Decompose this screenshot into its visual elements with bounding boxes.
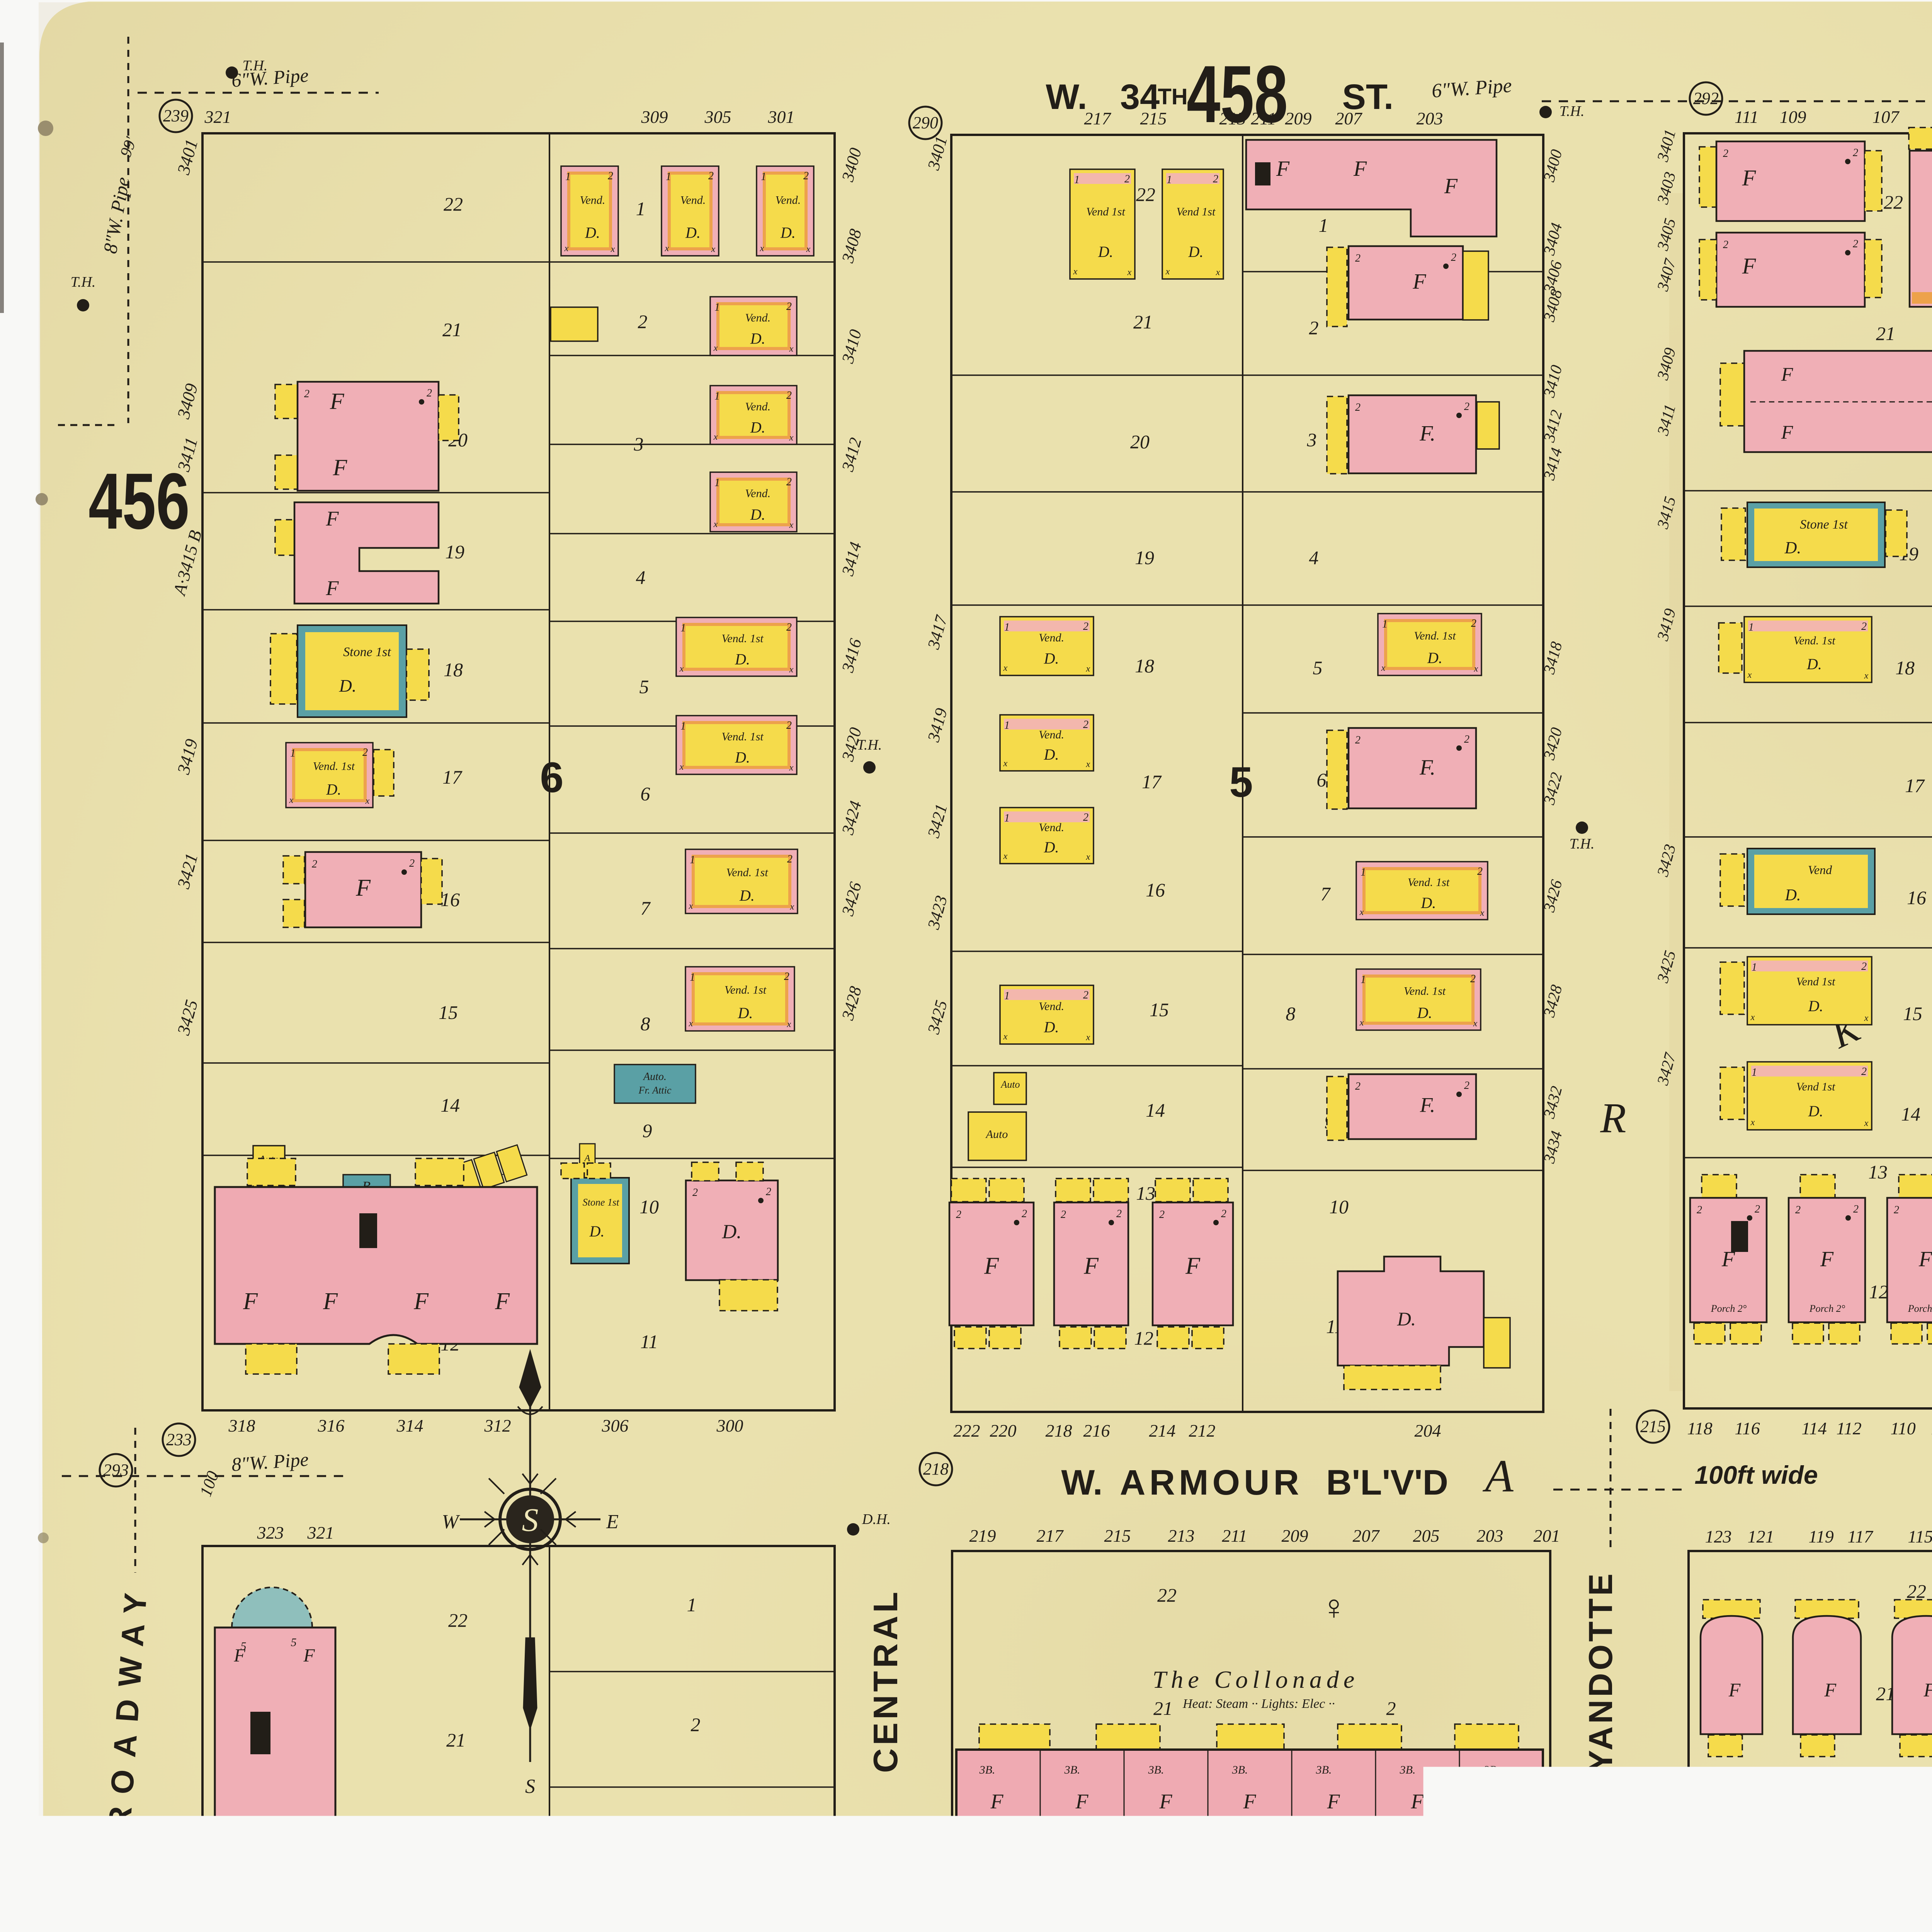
svg-text:17: 17 xyxy=(442,766,463,788)
svg-text:D.: D. xyxy=(1044,650,1059,667)
svg-text:x: x xyxy=(713,519,718,529)
svg-text:3B.: 3B. xyxy=(1316,1764,1332,1776)
svg-text:1: 1 xyxy=(980,1911,985,1923)
svg-text:x: x xyxy=(760,243,764,253)
svg-text:1: 1 xyxy=(714,477,720,489)
svg-text:312: 312 xyxy=(484,1416,511,1435)
svg-text:x: x xyxy=(1864,671,1869,681)
svg-text:3B.: 3B. xyxy=(1064,1764,1080,1776)
svg-text:321: 321 xyxy=(307,1523,334,1543)
svg-text:F: F xyxy=(1824,1679,1837,1701)
svg-text:2: 2 xyxy=(1723,239,1728,251)
svg-text:2: 2 xyxy=(786,476,792,488)
svg-text:F: F xyxy=(1918,1247,1932,1271)
svg-text:22: 22 xyxy=(1907,1580,1926,1602)
svg-text:220: 220 xyxy=(990,1421,1017,1440)
svg-text:17: 17 xyxy=(1905,775,1925,796)
svg-text:1: 1 xyxy=(680,720,686,732)
svg-text:Vend. 1st: Vend. 1st xyxy=(313,760,355,773)
svg-text:22: 22 xyxy=(1157,1584,1177,1606)
svg-text:F: F xyxy=(333,455,348,480)
svg-text:2: 2 xyxy=(1159,1209,1165,1221)
svg-text:D.: D. xyxy=(1044,746,1059,763)
svg-text:F: F xyxy=(1444,174,1458,198)
svg-text:x: x xyxy=(1474,664,1478,674)
svg-text:219: 219 xyxy=(969,1526,996,1546)
svg-text:Vend.: Vend. xyxy=(580,194,605,206)
svg-text:2: 2 xyxy=(1755,1203,1760,1215)
svg-text:2: 2 xyxy=(1723,148,1728,160)
svg-text:F: F xyxy=(323,1288,338,1315)
svg-text:F: F xyxy=(1075,1790,1089,1813)
svg-text:x: x xyxy=(789,433,794,443)
svg-text:212: 212 xyxy=(1189,1421,1216,1440)
svg-text:111: 111 xyxy=(1735,107,1759,127)
svg-text:F: F xyxy=(326,507,339,530)
svg-text:Vend.: Vend. xyxy=(1039,728,1064,741)
svg-text:1: 1 xyxy=(1748,621,1754,633)
svg-text:S: S xyxy=(525,1776,535,1798)
svg-text:1: 1 xyxy=(1319,214,1328,236)
svg-text:216: 216 xyxy=(1083,1421,1110,1440)
svg-text:209: 209 xyxy=(1282,1526,1308,1546)
svg-text:F: F xyxy=(1923,1679,1932,1701)
svg-text:x: x xyxy=(713,343,718,353)
svg-text:S: S xyxy=(522,1501,539,1538)
svg-text:1: 1 xyxy=(1074,174,1080,186)
svg-text:8: 8 xyxy=(1286,1003,1296,1024)
svg-text:D.H.: D.H. xyxy=(862,1511,891,1527)
svg-text:CENTRAL: CENTRAL xyxy=(866,1589,905,1773)
svg-text:D.: D. xyxy=(750,330,765,347)
svg-text:2: 2 xyxy=(1309,317,1319,338)
svg-text:2: 2 xyxy=(784,971,789,983)
svg-text:18: 18 xyxy=(1895,657,1915,679)
svg-text:x: x xyxy=(789,520,794,530)
svg-text:Stone 1st: Stone 1st xyxy=(1800,517,1848,532)
svg-text:2: 2 xyxy=(1054,1910,1060,1922)
svg-text:3: 3 xyxy=(689,1828,699,1849)
svg-text:318: 318 xyxy=(228,1416,255,1435)
svg-text:20: 20 xyxy=(1918,1833,1932,1855)
svg-text:119: 119 xyxy=(1808,1527,1834,1546)
svg-text:114: 114 xyxy=(1801,1418,1827,1438)
svg-text:8: 8 xyxy=(641,1013,650,1034)
svg-text:F: F xyxy=(243,1288,258,1315)
svg-text:F: F xyxy=(1353,157,1367,181)
svg-text:F: F xyxy=(1412,270,1426,294)
svg-text:F: F xyxy=(1781,363,1793,385)
svg-text:16: 16 xyxy=(1146,879,1165,901)
svg-text:121: 121 xyxy=(1748,1527,1774,1546)
svg-text:2: 2 xyxy=(1451,252,1456,264)
svg-text:309: 309 xyxy=(641,107,668,127)
svg-text:F: F xyxy=(303,1645,315,1666)
svg-text:F: F xyxy=(495,1288,510,1315)
svg-text:215: 215 xyxy=(1104,1526,1131,1546)
svg-text:1: 1 xyxy=(1361,866,1366,878)
svg-text:x: x xyxy=(365,796,370,806)
svg-text:2: 2 xyxy=(427,387,432,399)
svg-text:x: x xyxy=(1747,670,1752,680)
svg-text:2: 2 xyxy=(708,170,714,182)
svg-text:x: x xyxy=(665,243,669,253)
svg-text:203: 203 xyxy=(1477,1526,1503,1546)
svg-text:x: x xyxy=(689,901,693,911)
svg-text:x: x xyxy=(790,902,794,912)
svg-text:314: 314 xyxy=(396,1416,423,1435)
svg-text:215: 215 xyxy=(1140,109,1167,128)
svg-text:x: x xyxy=(1073,267,1078,277)
svg-text:22: 22 xyxy=(1884,191,1903,213)
svg-text:3B.: 3B. xyxy=(1232,1764,1248,1776)
svg-text:1: 1 xyxy=(714,301,720,313)
svg-text:x: x xyxy=(679,664,684,674)
svg-text:F: F xyxy=(1764,1928,1776,1932)
svg-text:2: 2 xyxy=(409,857,415,869)
svg-text:x: x xyxy=(679,762,684,772)
svg-text:2: 2 xyxy=(1386,1697,1396,1719)
svg-text:22: 22 xyxy=(1136,184,1155,205)
svg-text:E: E xyxy=(606,1511,619,1533)
svg-text:D.: D. xyxy=(1808,997,1823,1015)
svg-text:F: F xyxy=(1764,1866,1776,1886)
svg-text:214: 214 xyxy=(1149,1421,1176,1440)
svg-text:306: 306 xyxy=(602,1416,629,1435)
svg-text:F: F xyxy=(1411,1790,1424,1813)
svg-text:323: 323 xyxy=(257,1523,284,1543)
svg-text:F: F xyxy=(413,1288,429,1315)
svg-text:F: F xyxy=(1327,1790,1340,1813)
svg-text:Auto: Auto xyxy=(1000,1079,1020,1090)
svg-text:1: 1 xyxy=(1004,990,1010,1002)
svg-text:205: 205 xyxy=(1413,1526,1440,1546)
svg-text:218: 218 xyxy=(1046,1421,1072,1440)
svg-text:x: x xyxy=(1864,1013,1869,1023)
svg-text:21: 21 xyxy=(1153,1697,1173,1719)
svg-text:2: 2 xyxy=(787,853,793,865)
svg-text:222: 222 xyxy=(954,1421,980,1440)
svg-text:1: 1 xyxy=(690,854,695,866)
svg-text:22: 22 xyxy=(444,193,463,215)
svg-text:♀: ♀ xyxy=(1321,1588,1347,1627)
svg-text:x: x xyxy=(1359,1018,1364,1028)
svg-text:D.: D. xyxy=(1098,243,1113,260)
svg-text:201: 201 xyxy=(1534,1526,1560,1546)
svg-text:16: 16 xyxy=(1907,887,1926,908)
svg-text:15: 15 xyxy=(439,1002,458,1023)
svg-text:T.H.: T.H. xyxy=(243,58,268,74)
svg-text:Vend.: Vend. xyxy=(745,487,770,500)
svg-text:F: F xyxy=(1728,1679,1741,1701)
svg-text:Vend.: Vend. xyxy=(1039,821,1064,834)
svg-text:12: 12 xyxy=(1134,1327,1153,1349)
svg-text:100ft wide: 100ft wide xyxy=(1694,1461,1818,1489)
svg-text:F: F xyxy=(990,1790,1004,1813)
svg-text:Vend.: Vend. xyxy=(680,194,706,206)
svg-text:A: A xyxy=(584,1153,590,1163)
svg-text:2: 2 xyxy=(1221,1208,1226,1220)
svg-text:215: 215 xyxy=(1640,1417,1666,1436)
svg-text:7: 7 xyxy=(1321,883,1331,905)
svg-text:2: 2 xyxy=(786,301,792,313)
svg-text:F: F xyxy=(326,577,339,600)
svg-text:D.: D. xyxy=(685,224,701,241)
svg-text:x: x xyxy=(1480,908,1485,918)
svg-text:2: 2 xyxy=(1853,147,1858,159)
svg-text:116: 116 xyxy=(1735,1418,1760,1438)
svg-text:x: x xyxy=(689,1019,693,1029)
svg-text:3B.: 3B. xyxy=(979,1764,995,1776)
svg-text:6: 6 xyxy=(540,754,563,801)
svg-text:Vend 1st: Vend 1st xyxy=(1086,205,1125,218)
svg-text:2: 2 xyxy=(1697,1204,1702,1216)
svg-text:2: 2 xyxy=(362,747,368,759)
svg-text:D.: D. xyxy=(1784,538,1801,557)
svg-text:218: 218 xyxy=(923,1459,949,1478)
svg-text:F.: F. xyxy=(1419,756,1435,780)
svg-text:217: 217 xyxy=(1084,109,1112,128)
svg-text:1: 1 xyxy=(1004,719,1010,731)
svg-text:290: 290 xyxy=(913,113,938,132)
svg-text:203: 203 xyxy=(1417,109,1443,128)
svg-text:2: 2 xyxy=(1861,621,1867,633)
svg-text:D.: D. xyxy=(738,1004,753,1022)
svg-text:W: W xyxy=(442,1511,460,1533)
svg-text:x: x xyxy=(611,244,615,254)
svg-text:F: F xyxy=(1185,1253,1201,1279)
svg-text:1: 1 xyxy=(714,390,720,402)
svg-text:2: 2 xyxy=(638,311,648,332)
svg-text:D.: D. xyxy=(722,1221,742,1243)
svg-text:2: 2 xyxy=(1213,173,1218,185)
svg-text:211: 211 xyxy=(1222,1526,1247,1546)
svg-text:112: 112 xyxy=(1836,1418,1862,1438)
svg-text:10: 10 xyxy=(639,1196,659,1218)
svg-text:2: 2 xyxy=(1116,1208,1122,1220)
svg-text:21: 21 xyxy=(442,319,462,340)
svg-text:5: 5 xyxy=(1229,759,1253,806)
svg-text:x: x xyxy=(564,243,569,253)
svg-text:F.: F. xyxy=(1420,1093,1435,1116)
svg-text:T.H.: T.H. xyxy=(1570,836,1595,852)
svg-text:Vend. 1st: Vend. 1st xyxy=(724,984,767,997)
svg-text:17: 17 xyxy=(1142,771,1162,793)
svg-text:217: 217 xyxy=(1037,1526,1064,1546)
svg-text:10: 10 xyxy=(1329,1196,1349,1218)
svg-text:D.: D. xyxy=(735,749,750,766)
svg-text:213: 213 xyxy=(1168,1526,1195,1546)
svg-text:TH: TH xyxy=(1158,84,1187,109)
svg-text:T.H.: T.H. xyxy=(1560,103,1585,119)
svg-text:Vend.: Vend. xyxy=(745,311,770,324)
svg-text:2: 2 xyxy=(786,719,792,731)
svg-text:2: 2 xyxy=(1355,734,1361,746)
svg-text:2: 2 xyxy=(692,1187,698,1199)
svg-text:x: x xyxy=(787,1019,791,1029)
svg-text:20: 20 xyxy=(450,1841,469,1863)
svg-text:1: 1 xyxy=(687,1594,697,1616)
svg-text:2: 2 xyxy=(1471,617,1476,629)
svg-text:x: x xyxy=(1216,267,1220,277)
svg-text:ARMOUR: ARMOUR xyxy=(1120,1463,1303,1502)
svg-text:2: 2 xyxy=(1795,1204,1801,1216)
svg-text:F: F xyxy=(1764,1808,1776,1828)
svg-text:2: 2 xyxy=(608,170,613,182)
svg-text:1: 1 xyxy=(666,171,671,183)
svg-text:The Collonade: The Collonade xyxy=(1153,1666,1359,1693)
svg-text:x: x xyxy=(789,665,794,675)
svg-text:233: 233 xyxy=(166,1430,192,1449)
svg-text:301: 301 xyxy=(768,107,795,127)
svg-text:Stone 1st: Stone 1st xyxy=(583,1197,619,1208)
svg-text:2: 2 xyxy=(312,858,317,870)
svg-text:D.: D. xyxy=(739,887,755,904)
svg-text:2: 2 xyxy=(1464,1080,1469,1092)
svg-text:1: 1 xyxy=(1167,174,1172,186)
svg-text:2: 2 xyxy=(1464,733,1469,745)
svg-text:Stone 1st: Stone 1st xyxy=(343,645,391,659)
svg-text:239: 239 xyxy=(163,106,189,125)
svg-text:3B.: 3B. xyxy=(1483,1764,1500,1776)
svg-text:4: 4 xyxy=(636,566,646,588)
svg-text:2: 2 xyxy=(1861,961,1867,973)
svg-text:456: 456 xyxy=(88,457,190,546)
svg-text:F: F xyxy=(1742,165,1756,190)
svg-text:321: 321 xyxy=(204,107,231,127)
svg-text:F: F xyxy=(355,875,371,901)
svg-text:2: 2 xyxy=(786,389,792,401)
svg-text:21: 21 xyxy=(1133,311,1153,333)
svg-text:2: 2 xyxy=(1894,1204,1899,1216)
svg-text:F: F xyxy=(1243,1790,1257,1813)
svg-text:14: 14 xyxy=(1146,1099,1165,1121)
svg-text:D.: D. xyxy=(735,651,750,668)
svg-text:Vend: Vend xyxy=(1808,863,1832,877)
svg-text:x: x xyxy=(1165,267,1170,277)
svg-text:1: 1 xyxy=(1004,812,1010,824)
svg-text:9: 9 xyxy=(643,1120,652,1141)
svg-text:2: 2 xyxy=(1022,1208,1027,1220)
svg-text:1: 1 xyxy=(1752,961,1757,973)
svg-text:2: 2 xyxy=(766,1186,771,1198)
svg-text:D.: D. xyxy=(780,224,796,241)
svg-text:3: 3 xyxy=(1307,429,1317,451)
svg-text:x: x xyxy=(711,244,716,254)
svg-text:1: 1 xyxy=(761,171,766,183)
svg-text:R: R xyxy=(1600,1094,1626,1141)
svg-text:D.: D. xyxy=(1785,886,1801,904)
svg-text:D.: D. xyxy=(1017,1927,1032,1932)
svg-text:18: 18 xyxy=(1135,655,1154,677)
svg-text:2: 2 xyxy=(1083,811,1088,823)
svg-text:207: 207 xyxy=(1353,1526,1380,1546)
svg-text:1: 1 xyxy=(1004,621,1010,633)
svg-text:15: 15 xyxy=(1150,999,1169,1020)
svg-text:11: 11 xyxy=(640,1331,658,1352)
svg-text:F: F xyxy=(1781,421,1793,443)
svg-text:13: 13 xyxy=(1136,1182,1155,1204)
svg-text:Vend. 1st: Vend. 1st xyxy=(1404,985,1446,997)
svg-text:D.: D. xyxy=(750,506,765,523)
svg-text:19: 19 xyxy=(445,541,464,563)
svg-text:305: 305 xyxy=(704,107,731,127)
svg-text:D.: D. xyxy=(1427,649,1442,667)
svg-text:213: 213 xyxy=(1219,109,1246,128)
svg-text:13: 13 xyxy=(1868,1161,1888,1183)
svg-text:D.: D. xyxy=(1421,894,1436,912)
svg-text:16: 16 xyxy=(440,889,460,910)
svg-text:D.: D. xyxy=(1469,1927,1484,1932)
svg-text:1: 1 xyxy=(1423,1911,1429,1923)
svg-text:W.: W. xyxy=(1046,77,1087,117)
svg-text:D.: D. xyxy=(750,419,765,436)
svg-text:2: 2 xyxy=(691,1714,701,1735)
svg-text:B'L'V'D: B'L'V'D xyxy=(1326,1463,1448,1502)
svg-text:Vend. 1st: Vend. 1st xyxy=(726,866,768,879)
svg-text:E: E xyxy=(265,1837,275,1854)
svg-text:x: x xyxy=(713,432,718,442)
svg-text:2: 2 xyxy=(304,388,310,400)
svg-text:2: 2 xyxy=(1061,1209,1066,1221)
svg-text:4: 4 xyxy=(1309,547,1319,568)
svg-text:1: 1 xyxy=(1752,1066,1757,1078)
svg-text:F: F xyxy=(330,389,345,414)
svg-text:x: x xyxy=(289,795,294,805)
svg-text:2: 2 xyxy=(1083,719,1088,731)
svg-text:Vend.: Vend. xyxy=(1039,631,1064,644)
svg-text:1: 1 xyxy=(290,747,296,759)
svg-text:110: 110 xyxy=(1890,1418,1916,1438)
svg-text:2: 2 xyxy=(1470,973,1476,985)
svg-text:F: F xyxy=(1742,253,1756,279)
svg-text:21: 21 xyxy=(1876,323,1895,344)
svg-text:x: x xyxy=(1086,852,1090,862)
svg-text:18: 18 xyxy=(444,659,463,680)
svg-text:Vend. 1st: Vend. 1st xyxy=(721,730,764,743)
svg-text:x: x xyxy=(1003,759,1008,769)
svg-text:x: x xyxy=(1864,1118,1869,1128)
svg-text:2: 2 xyxy=(803,170,809,182)
svg-text:F: F xyxy=(1083,1253,1099,1279)
svg-text:2: 2 xyxy=(1124,173,1130,185)
svg-text:x: x xyxy=(1750,1012,1755,1022)
svg-text:209: 209 xyxy=(1285,109,1312,128)
svg-text:21: 21 xyxy=(446,1729,466,1751)
svg-text:x: x xyxy=(1359,907,1364,917)
svg-text:20: 20 xyxy=(1130,431,1150,452)
svg-text:D.: D. xyxy=(1188,243,1203,260)
svg-text:107: 107 xyxy=(1872,107,1900,127)
svg-text:300: 300 xyxy=(716,1416,743,1435)
svg-text:x: x xyxy=(789,763,794,773)
svg-text:Auto: Auto xyxy=(985,1128,1008,1141)
svg-text:293: 293 xyxy=(103,1461,129,1480)
svg-text:2: 2 xyxy=(1083,989,1088,1001)
svg-text:A: A xyxy=(1482,1450,1514,1502)
svg-text:5: 5 xyxy=(241,1640,247,1653)
svg-text:F: F xyxy=(1276,157,1290,181)
svg-text:204: 204 xyxy=(1415,1421,1441,1440)
svg-text:D.: D. xyxy=(1417,1004,1432,1021)
svg-text:3B.: 3B. xyxy=(1400,1764,1416,1776)
svg-text:118: 118 xyxy=(1687,1418,1713,1438)
svg-text:115: 115 xyxy=(1908,1527,1932,1546)
svg-text:Vend 1st: Vend 1st xyxy=(1796,975,1835,988)
svg-text:316: 316 xyxy=(318,1416,345,1435)
svg-text:292: 292 xyxy=(1693,89,1719,108)
svg-text:211: 211 xyxy=(1251,109,1276,128)
